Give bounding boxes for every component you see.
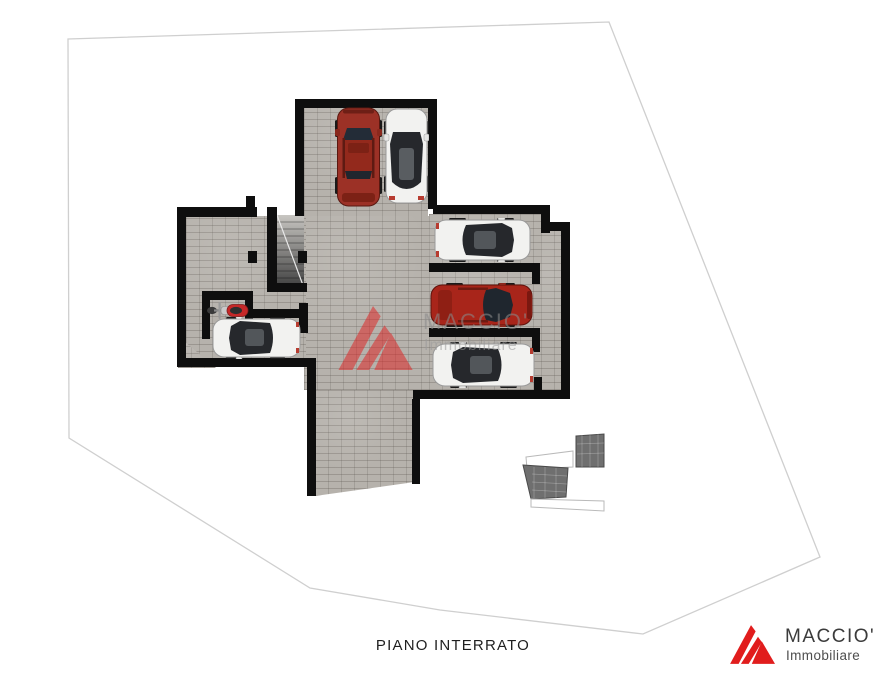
wall (428, 99, 437, 209)
agency-name: MACCIO' (785, 626, 875, 648)
car-white-bay3-icon (432, 342, 535, 388)
wall (298, 251, 307, 263)
wall (561, 222, 570, 399)
car-white-bay1-icon (434, 218, 531, 262)
external-stairs (520, 428, 612, 518)
agency-tagline: Immobiliare (786, 648, 860, 663)
wall (267, 283, 307, 292)
wall (248, 251, 257, 263)
floor-right-strip (541, 231, 561, 390)
car-red-bay2-icon (430, 283, 533, 327)
floor-label: PIANO INTERRATO (333, 637, 573, 654)
floorplan-canvas: MACCIO' Immobiliare PIANO INTERRATO MACC… (0, 0, 880, 680)
wall (177, 358, 312, 367)
wall (541, 205, 550, 233)
wall (433, 205, 550, 214)
wall (429, 328, 540, 337)
landing-bottom (531, 499, 604, 511)
agency-logo: MACCIO' Immobiliare (727, 620, 877, 670)
wall (177, 207, 257, 217)
wall (534, 377, 542, 390)
wall (532, 272, 540, 284)
wall (295, 99, 304, 216)
wall (307, 358, 316, 496)
stair-flight-lower (523, 465, 568, 499)
floor-ramp (315, 390, 413, 496)
wall (429, 263, 540, 272)
car-white-top-icon (384, 108, 429, 204)
wall (246, 196, 255, 207)
floor-garage-hall (304, 216, 429, 390)
wall (177, 207, 186, 367)
wall (412, 399, 420, 484)
car-red-suv-icon (335, 107, 382, 207)
wall (267, 207, 277, 292)
scooter-icon (206, 299, 250, 322)
agency-logo-icon (727, 622, 775, 667)
car-white-left-icon (212, 317, 301, 359)
wall (413, 390, 569, 399)
